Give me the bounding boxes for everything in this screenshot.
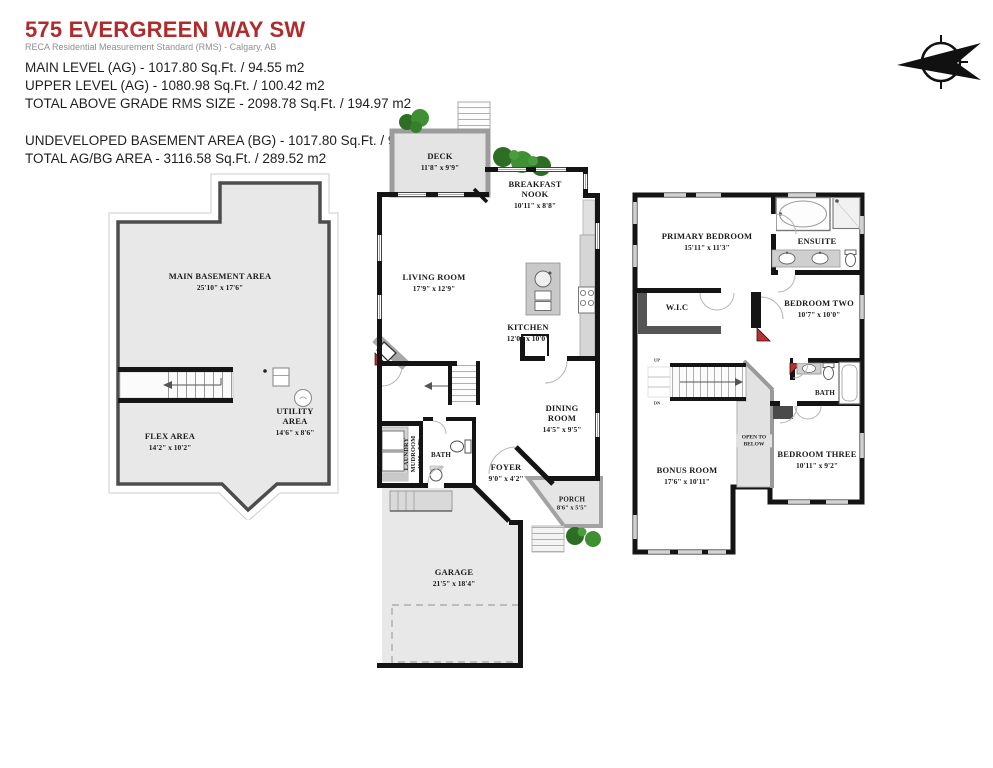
kitchen-island — [526, 263, 560, 315]
water-heater-icon — [295, 390, 312, 407]
sink-icon — [430, 466, 442, 481]
shower-icon — [833, 198, 860, 229]
kitchen-counter — [580, 200, 595, 357]
bathtub-icon — [839, 362, 860, 404]
main-level-plan: DECK 11'8" x 9'9" BREAKFAST NOOK 10'11" … — [370, 95, 620, 675]
stove-icon — [579, 287, 596, 313]
upper-level-plan: PRIMARY BEDROOM 15'11" x 11'3" ENSUITE W… — [630, 180, 875, 570]
room-label-bedroom-three: BEDROOM THREE 10'11" x 9'2" — [777, 450, 856, 470]
basement-drawing — [105, 170, 345, 520]
room-label-breakfast-nook: BREAKFAST NOOK 10'11" x 8'8" — [499, 180, 571, 210]
north-arrow-icon — [893, 28, 985, 94]
double-vanity-icon — [772, 250, 840, 267]
room-label-flex-area: FLEX AREA 14'2" x 10'2" — [145, 432, 195, 452]
toilet-icon — [823, 363, 834, 380]
room-label-kitchen: KITCHEN 12'0" x 10'0" — [507, 323, 550, 343]
basement-stairs — [118, 367, 233, 403]
room-label-bonus-room: BONUS ROOM 17'6" x 10'11" — [657, 466, 718, 486]
room-label-laundry-mudroom: LAUNDRY MUDROOM 10'9" x 5'7" — [403, 431, 425, 477]
main-level-drawing — [370, 95, 620, 675]
bathtub-icon — [776, 198, 830, 231]
room-label-bath-upper: BATH — [815, 389, 835, 397]
toilet-icon — [845, 250, 856, 267]
open-to-below-label: OPEN TO BELOW — [736, 434, 772, 447]
page-title: 575 EVERGREEN WAY SW — [25, 18, 444, 41]
room-label-utility-area: UTILITY AREA 14'6" x 8'6" — [266, 407, 324, 437]
stairs-dn-label: DN — [654, 401, 661, 406]
main-level-area: MAIN LEVEL (AG) - 1017.80 Sq.Ft. / 94.55… — [25, 59, 444, 77]
stairs-up-label: UP — [654, 358, 660, 363]
toilet-icon — [451, 440, 472, 453]
room-label-wic: W.I.C — [666, 303, 688, 313]
measurement-standard-note: RECA Residential Measurement Standard (R… — [25, 42, 444, 52]
tree-icon — [566, 527, 601, 547]
room-label-living-room: LIVING ROOM 17'9" x 12'9" — [403, 273, 466, 293]
bedroom-three-closet — [773, 406, 793, 419]
basement-outline — [109, 174, 338, 520]
room-label-ensuite: ENSUITE — [798, 237, 837, 247]
room-label-porch: PORCH 8'6" x 5'5" — [557, 496, 587, 513]
upper-level-area: UPPER LEVEL (AG) - 1080.98 Sq.Ft. / 100.… — [25, 77, 444, 95]
room-label-bedroom-two: BEDROOM TWO 10'7" x 10'0" — [784, 299, 854, 319]
room-label-main-basement-area: MAIN BASEMENT AREA 25'10" x 17'6" — [169, 272, 272, 292]
room-label-dining-room: DINING ROOM 14'5" x 9'5" — [533, 404, 591, 434]
room-label-bath-main: BATH — [431, 451, 451, 459]
room-label-garage: GARAGE 21'5" x 18'4" — [433, 568, 476, 588]
room-label-foyer: FOYER 9'0" x 4'2" — [489, 463, 524, 483]
floorplan-page: 575 EVERGREEN WAY SW RECA Residential Me… — [0, 0, 993, 768]
bath-vanity-icon — [797, 363, 821, 374]
room-label-primary-bedroom: PRIMARY BEDROOM 15'11" x 11'3" — [662, 232, 752, 252]
room-label-deck: DECK 11'8" x 9'9" — [421, 152, 459, 172]
basement-plan: MAIN BASEMENT AREA 25'10" x 17'6" FLEX A… — [105, 170, 345, 520]
